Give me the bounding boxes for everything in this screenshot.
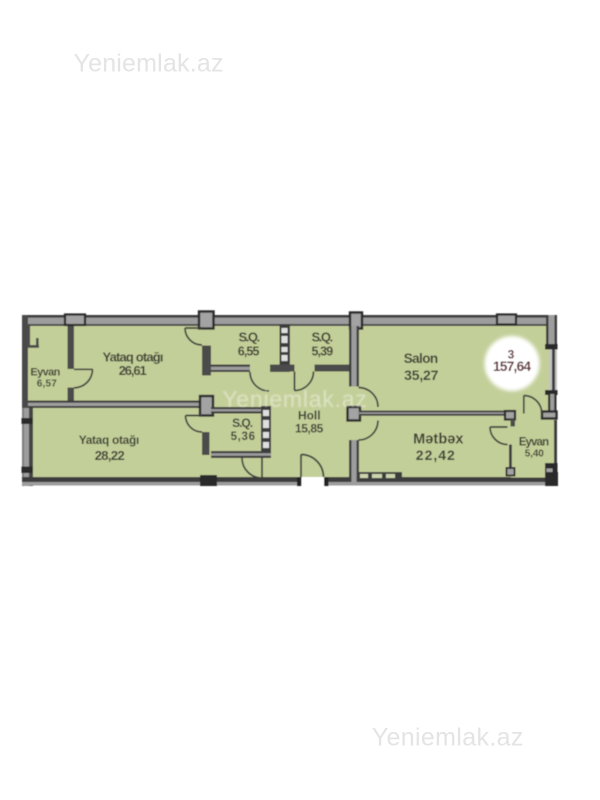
svg-text:Yeniemlak.az: Yeniemlak.az — [74, 50, 224, 78]
svg-text:S.Q.: S.Q. — [238, 330, 260, 345]
svg-text:Yataq otağı: Yataq otağı — [79, 433, 140, 447]
svg-text:Eyvan: Eyvan — [519, 437, 549, 449]
svg-text:Mətbəx: Mətbəx — [413, 432, 463, 448]
svg-text:28,22: 28,22 — [95, 448, 125, 463]
svg-text:15,85: 15,85 — [295, 422, 324, 436]
svg-text:35,27: 35,27 — [404, 367, 439, 383]
svg-text:S.Q.: S.Q. — [311, 330, 333, 345]
svg-text:157,64: 157,64 — [493, 359, 531, 374]
svg-text:Salon: Salon — [404, 351, 438, 366]
svg-text:26,61: 26,61 — [119, 363, 147, 378]
svg-text:Yeniemlak.az: Yeniemlak.az — [372, 724, 524, 752]
svg-text:6,55: 6,55 — [238, 344, 260, 358]
svg-text:5,39: 5,39 — [311, 344, 333, 358]
svg-text:22,42: 22,42 — [416, 447, 455, 463]
svg-text:Yeniemlak.az: Yeniemlak.az — [222, 386, 366, 412]
svg-text:5,40: 5,40 — [525, 449, 544, 460]
svg-text:5,36: 5,36 — [231, 431, 255, 443]
svg-text:6,57: 6,57 — [37, 378, 57, 389]
svg-text:S.Q.: S.Q. — [232, 416, 253, 430]
svg-text:Eyvan: Eyvan — [30, 367, 60, 379]
